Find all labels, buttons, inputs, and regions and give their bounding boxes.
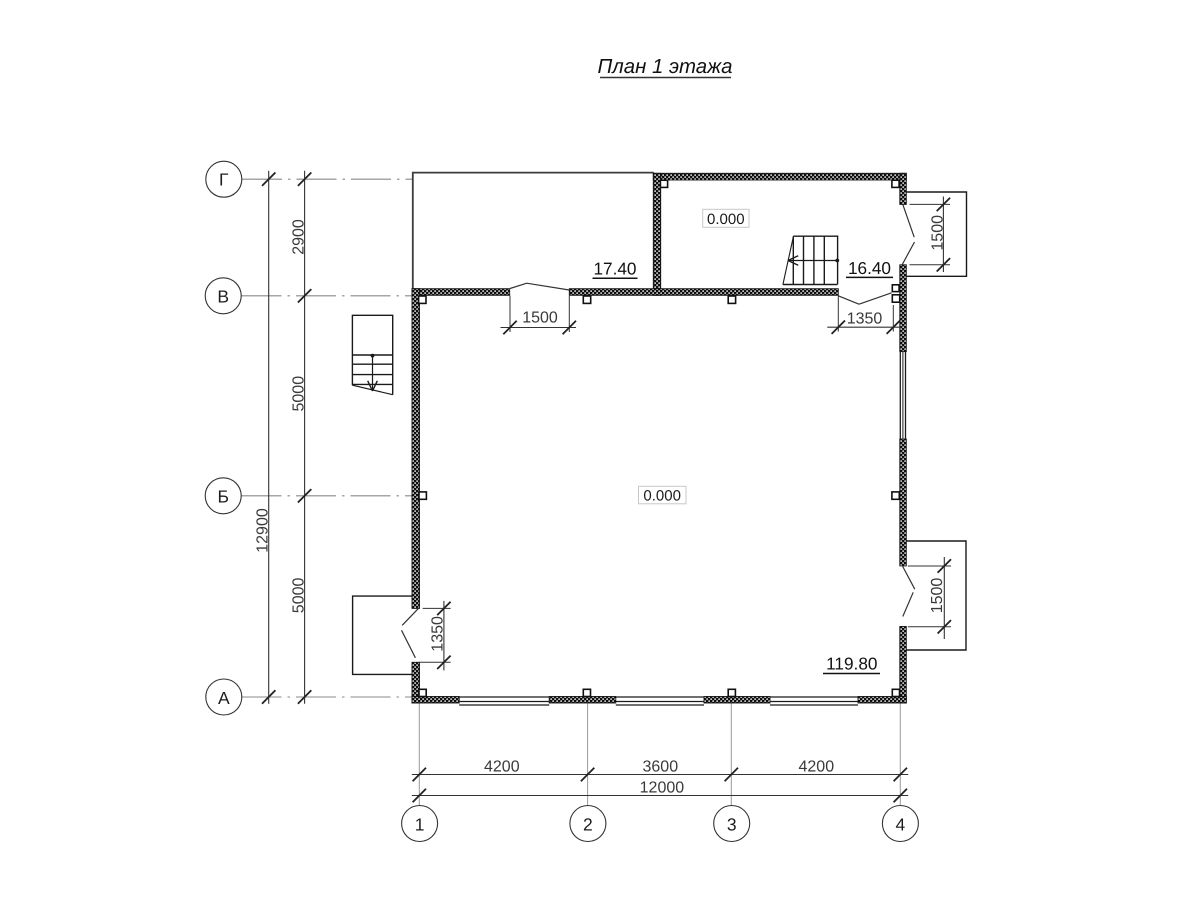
svg-text:Г: Г <box>219 170 229 190</box>
svg-text:4200: 4200 <box>799 758 835 775</box>
svg-text:119.80: 119.80 <box>826 654 877 674</box>
svg-text:3: 3 <box>727 814 737 834</box>
svg-text:План 1 этажа: План 1 этажа <box>598 56 733 78</box>
svg-text:1500: 1500 <box>930 215 947 251</box>
svg-text:Б: Б <box>217 487 228 507</box>
svg-text:1500: 1500 <box>522 310 558 327</box>
svg-text:1: 1 <box>415 814 425 834</box>
svg-text:1350: 1350 <box>847 311 883 328</box>
svg-text:0.000: 0.000 <box>643 488 681 505</box>
svg-text:12000: 12000 <box>640 779 685 796</box>
svg-text:1500: 1500 <box>929 578 946 614</box>
svg-text:4200: 4200 <box>484 758 520 775</box>
svg-text:17.40: 17.40 <box>593 259 636 279</box>
svg-text:16.40: 16.40 <box>848 258 891 278</box>
svg-text:2900: 2900 <box>290 219 307 255</box>
svg-text:4: 4 <box>896 814 906 834</box>
svg-text:А: А <box>218 688 230 708</box>
svg-text:3600: 3600 <box>643 758 679 775</box>
svg-text:2: 2 <box>583 814 593 834</box>
svg-text:12900: 12900 <box>255 508 272 553</box>
svg-text:В: В <box>217 287 229 307</box>
svg-text:1350: 1350 <box>430 616 447 652</box>
svg-text:0.000: 0.000 <box>707 211 745 228</box>
svg-text:5000: 5000 <box>290 578 307 614</box>
svg-text:5000: 5000 <box>290 376 307 412</box>
